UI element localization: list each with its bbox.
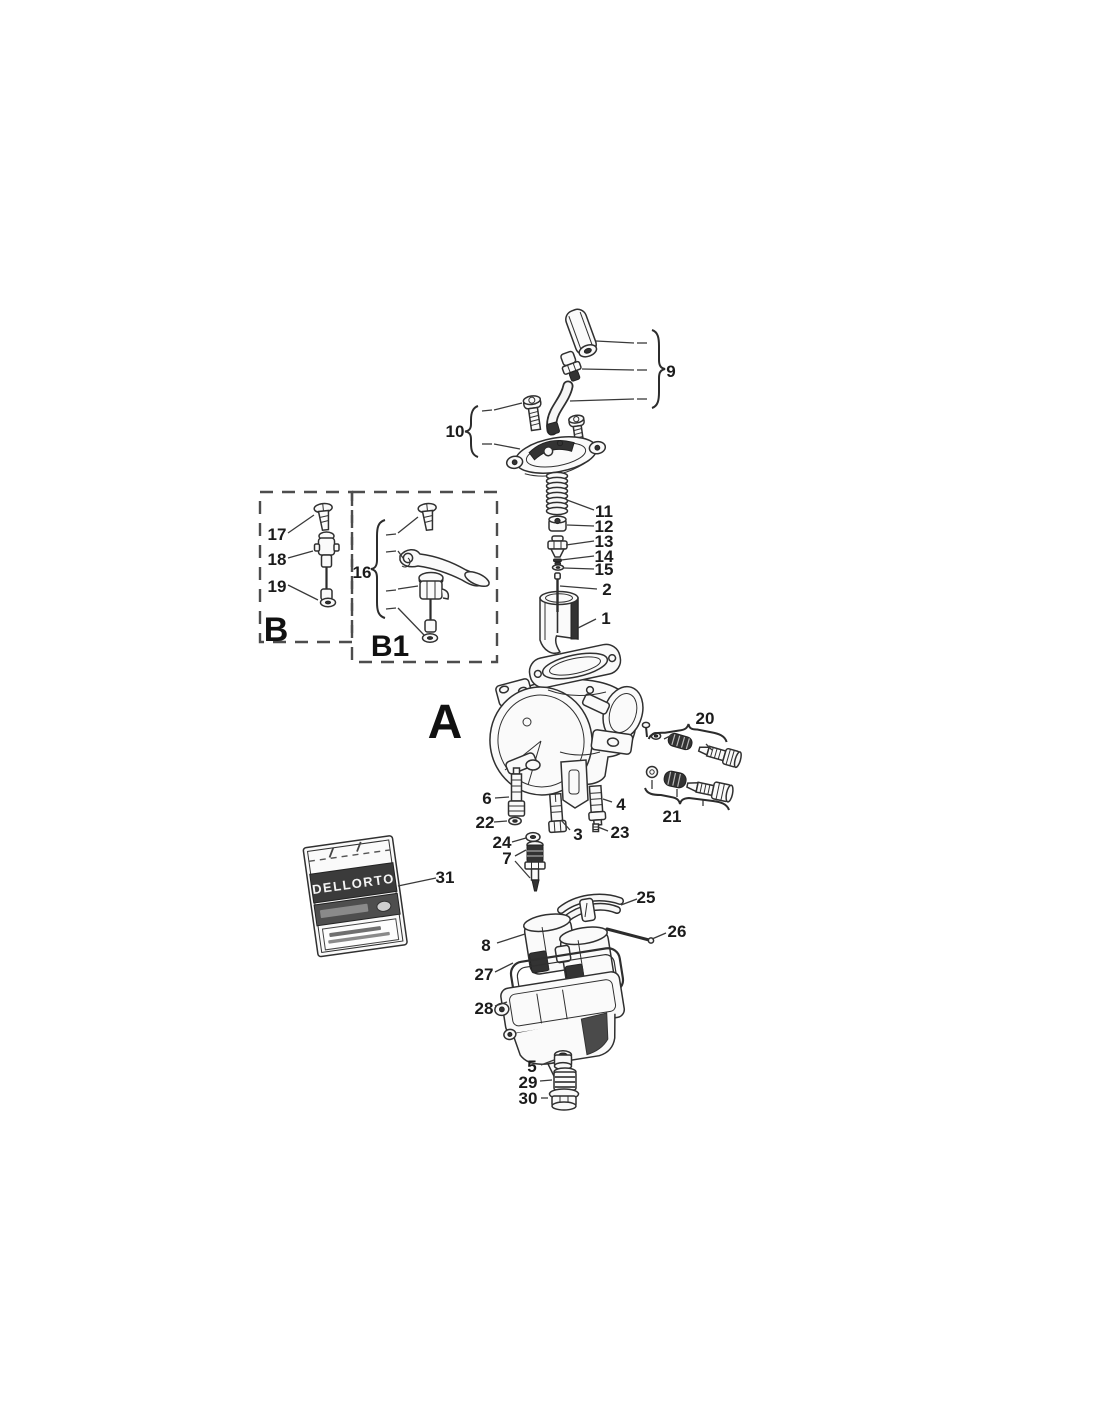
callout-23: 23 xyxy=(611,823,630,842)
callout-1: 1 xyxy=(601,609,610,628)
callout-20: 20 xyxy=(696,709,715,728)
group-20 xyxy=(642,722,742,768)
callout-8: 8 xyxy=(481,936,490,955)
brace-16 xyxy=(371,517,424,635)
carburetor-body xyxy=(483,642,649,808)
b1-washer xyxy=(423,634,438,642)
washer-22 xyxy=(509,817,521,824)
b1-choke-lever xyxy=(400,550,491,590)
callout-22: 22 xyxy=(476,813,495,832)
spring-seat-12 xyxy=(549,516,566,531)
washer-15 xyxy=(553,565,564,570)
needle-clip-14 xyxy=(554,559,562,565)
callout-16: 16 xyxy=(353,563,372,582)
page: { "sections": { "a": "A", "b": "B", "b1"… xyxy=(0,0,1100,1422)
cable-tube xyxy=(546,386,568,435)
callout-6: 6 xyxy=(482,789,491,808)
callout-28: 28 xyxy=(475,999,494,1018)
brace-10 xyxy=(465,403,522,457)
callout-19: 19 xyxy=(268,577,287,596)
filter-29 xyxy=(554,1068,576,1090)
spares-bag: DELLORTO xyxy=(303,835,407,956)
group-21 xyxy=(645,767,734,811)
pin-23 xyxy=(593,824,599,832)
callout-15: 15 xyxy=(595,560,614,579)
needle-holder-13 xyxy=(548,536,567,557)
callout-31: 31 xyxy=(436,868,455,887)
choke-plunger-18 xyxy=(315,532,340,600)
float-valve-7 xyxy=(525,841,545,891)
idle-jet-4 xyxy=(587,785,606,825)
float-pin xyxy=(607,929,654,943)
nut-30 xyxy=(550,1089,579,1110)
washer-24 xyxy=(526,833,540,842)
callout-27: 27 xyxy=(475,965,494,984)
callout-10: 10 xyxy=(446,422,465,441)
callout-25: 25 xyxy=(637,888,656,907)
emulsion-tube-6 xyxy=(509,768,525,816)
callout-2: 2 xyxy=(602,580,611,599)
callout-4: 4 xyxy=(616,795,626,814)
section-label-b1: B1 xyxy=(371,630,409,663)
callout-18: 18 xyxy=(268,550,287,569)
bowl-plug-5 xyxy=(555,1051,572,1070)
callout-21: 21 xyxy=(663,807,682,826)
callout-30: 30 xyxy=(519,1089,538,1108)
cover-screw-left xyxy=(523,395,545,431)
throttle-slide xyxy=(540,592,578,654)
callout-9: 9 xyxy=(666,362,675,381)
return-spring xyxy=(547,472,568,514)
section-label-b: B xyxy=(264,611,289,649)
callout-26: 26 xyxy=(668,922,687,941)
choke-washer-19 xyxy=(321,598,336,606)
callout-17: 17 xyxy=(268,525,287,544)
b1-screw xyxy=(418,503,439,531)
callout-3: 3 xyxy=(573,825,582,844)
choke-screw-17 xyxy=(314,503,335,531)
exploded-parts-diagram: DELLORTO xyxy=(0,0,1100,1422)
section-label-a: A xyxy=(428,696,463,749)
callout-24: 24 xyxy=(493,833,512,852)
b1-starter-plunger xyxy=(419,573,448,633)
